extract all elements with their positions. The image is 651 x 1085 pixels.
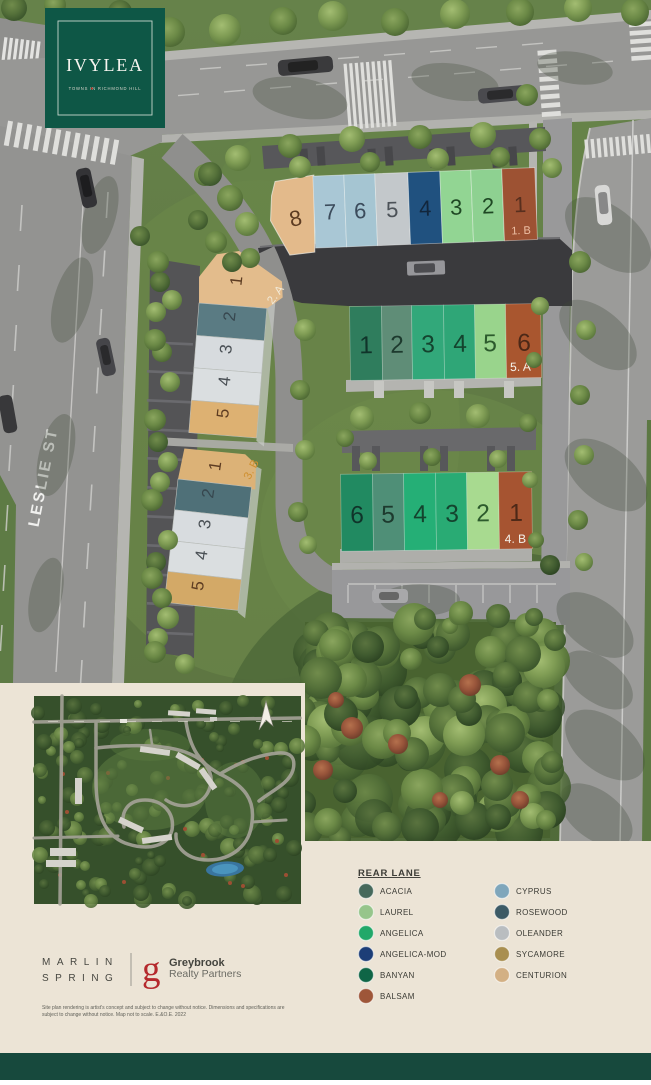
svg-text:IVYLEA: IVYLEA — [66, 55, 144, 75]
svg-text:ACACIA: ACACIA — [380, 887, 412, 896]
svg-text:2: 2 — [482, 193, 495, 218]
svg-text:Site plan rendering is artist': Site plan rendering is artist's concept … — [42, 1005, 285, 1011]
svg-text:1: 1 — [509, 500, 523, 527]
svg-text:ROSEWOOD: ROSEWOOD — [516, 908, 568, 917]
svg-text:REAR LANE: REAR LANE — [358, 868, 421, 879]
svg-text:g: g — [142, 949, 161, 990]
svg-text:4: 4 — [413, 501, 427, 528]
svg-text:1: 1 — [359, 332, 373, 359]
svg-text:4: 4 — [419, 196, 432, 221]
svg-text:2: 2 — [476, 500, 490, 527]
svg-text:BALSAM: BALSAM — [380, 992, 415, 1001]
svg-text:5: 5 — [381, 502, 395, 529]
svg-text:3: 3 — [445, 501, 459, 528]
svg-text:5: 5 — [386, 197, 399, 222]
svg-text:LAUREL: LAUREL — [380, 908, 414, 917]
svg-text:Realty Partners: Realty Partners — [169, 968, 241, 980]
svg-text:subject to change without noti: subject to change without notice. Map no… — [42, 1012, 186, 1018]
svg-text:BANYAN: BANYAN — [380, 971, 415, 980]
svg-text:3: 3 — [450, 194, 463, 219]
svg-text:4. B: 4. B — [505, 532, 527, 546]
svg-text:MARLIN: MARLIN — [42, 957, 119, 968]
svg-text:1. B: 1. B — [511, 225, 531, 238]
svg-text:2: 2 — [390, 332, 404, 359]
svg-text:7: 7 — [324, 199, 337, 224]
svg-text:6: 6 — [354, 198, 367, 223]
svg-text:6: 6 — [517, 330, 531, 357]
svg-text:OLEANDER: OLEANDER — [516, 929, 563, 938]
svg-text:6: 6 — [350, 502, 364, 529]
svg-text:3: 3 — [421, 331, 435, 358]
svg-text:TOWNS IN RICHMOND HILL: TOWNS IN RICHMOND HILL — [69, 86, 142, 91]
svg-text:4: 4 — [453, 331, 467, 358]
svg-text:ANGELICA: ANGELICA — [380, 929, 424, 938]
svg-text:ANGELICA-MOD: ANGELICA-MOD — [380, 950, 447, 959]
svg-text:5: 5 — [483, 330, 497, 357]
svg-text:SYCAMORE: SYCAMORE — [516, 950, 565, 959]
svg-text:CENTURION: CENTURION — [516, 971, 567, 980]
svg-text:1: 1 — [513, 192, 526, 217]
svg-text:CYPRUS: CYPRUS — [516, 887, 552, 896]
svg-text:SPRING: SPRING — [42, 973, 119, 984]
